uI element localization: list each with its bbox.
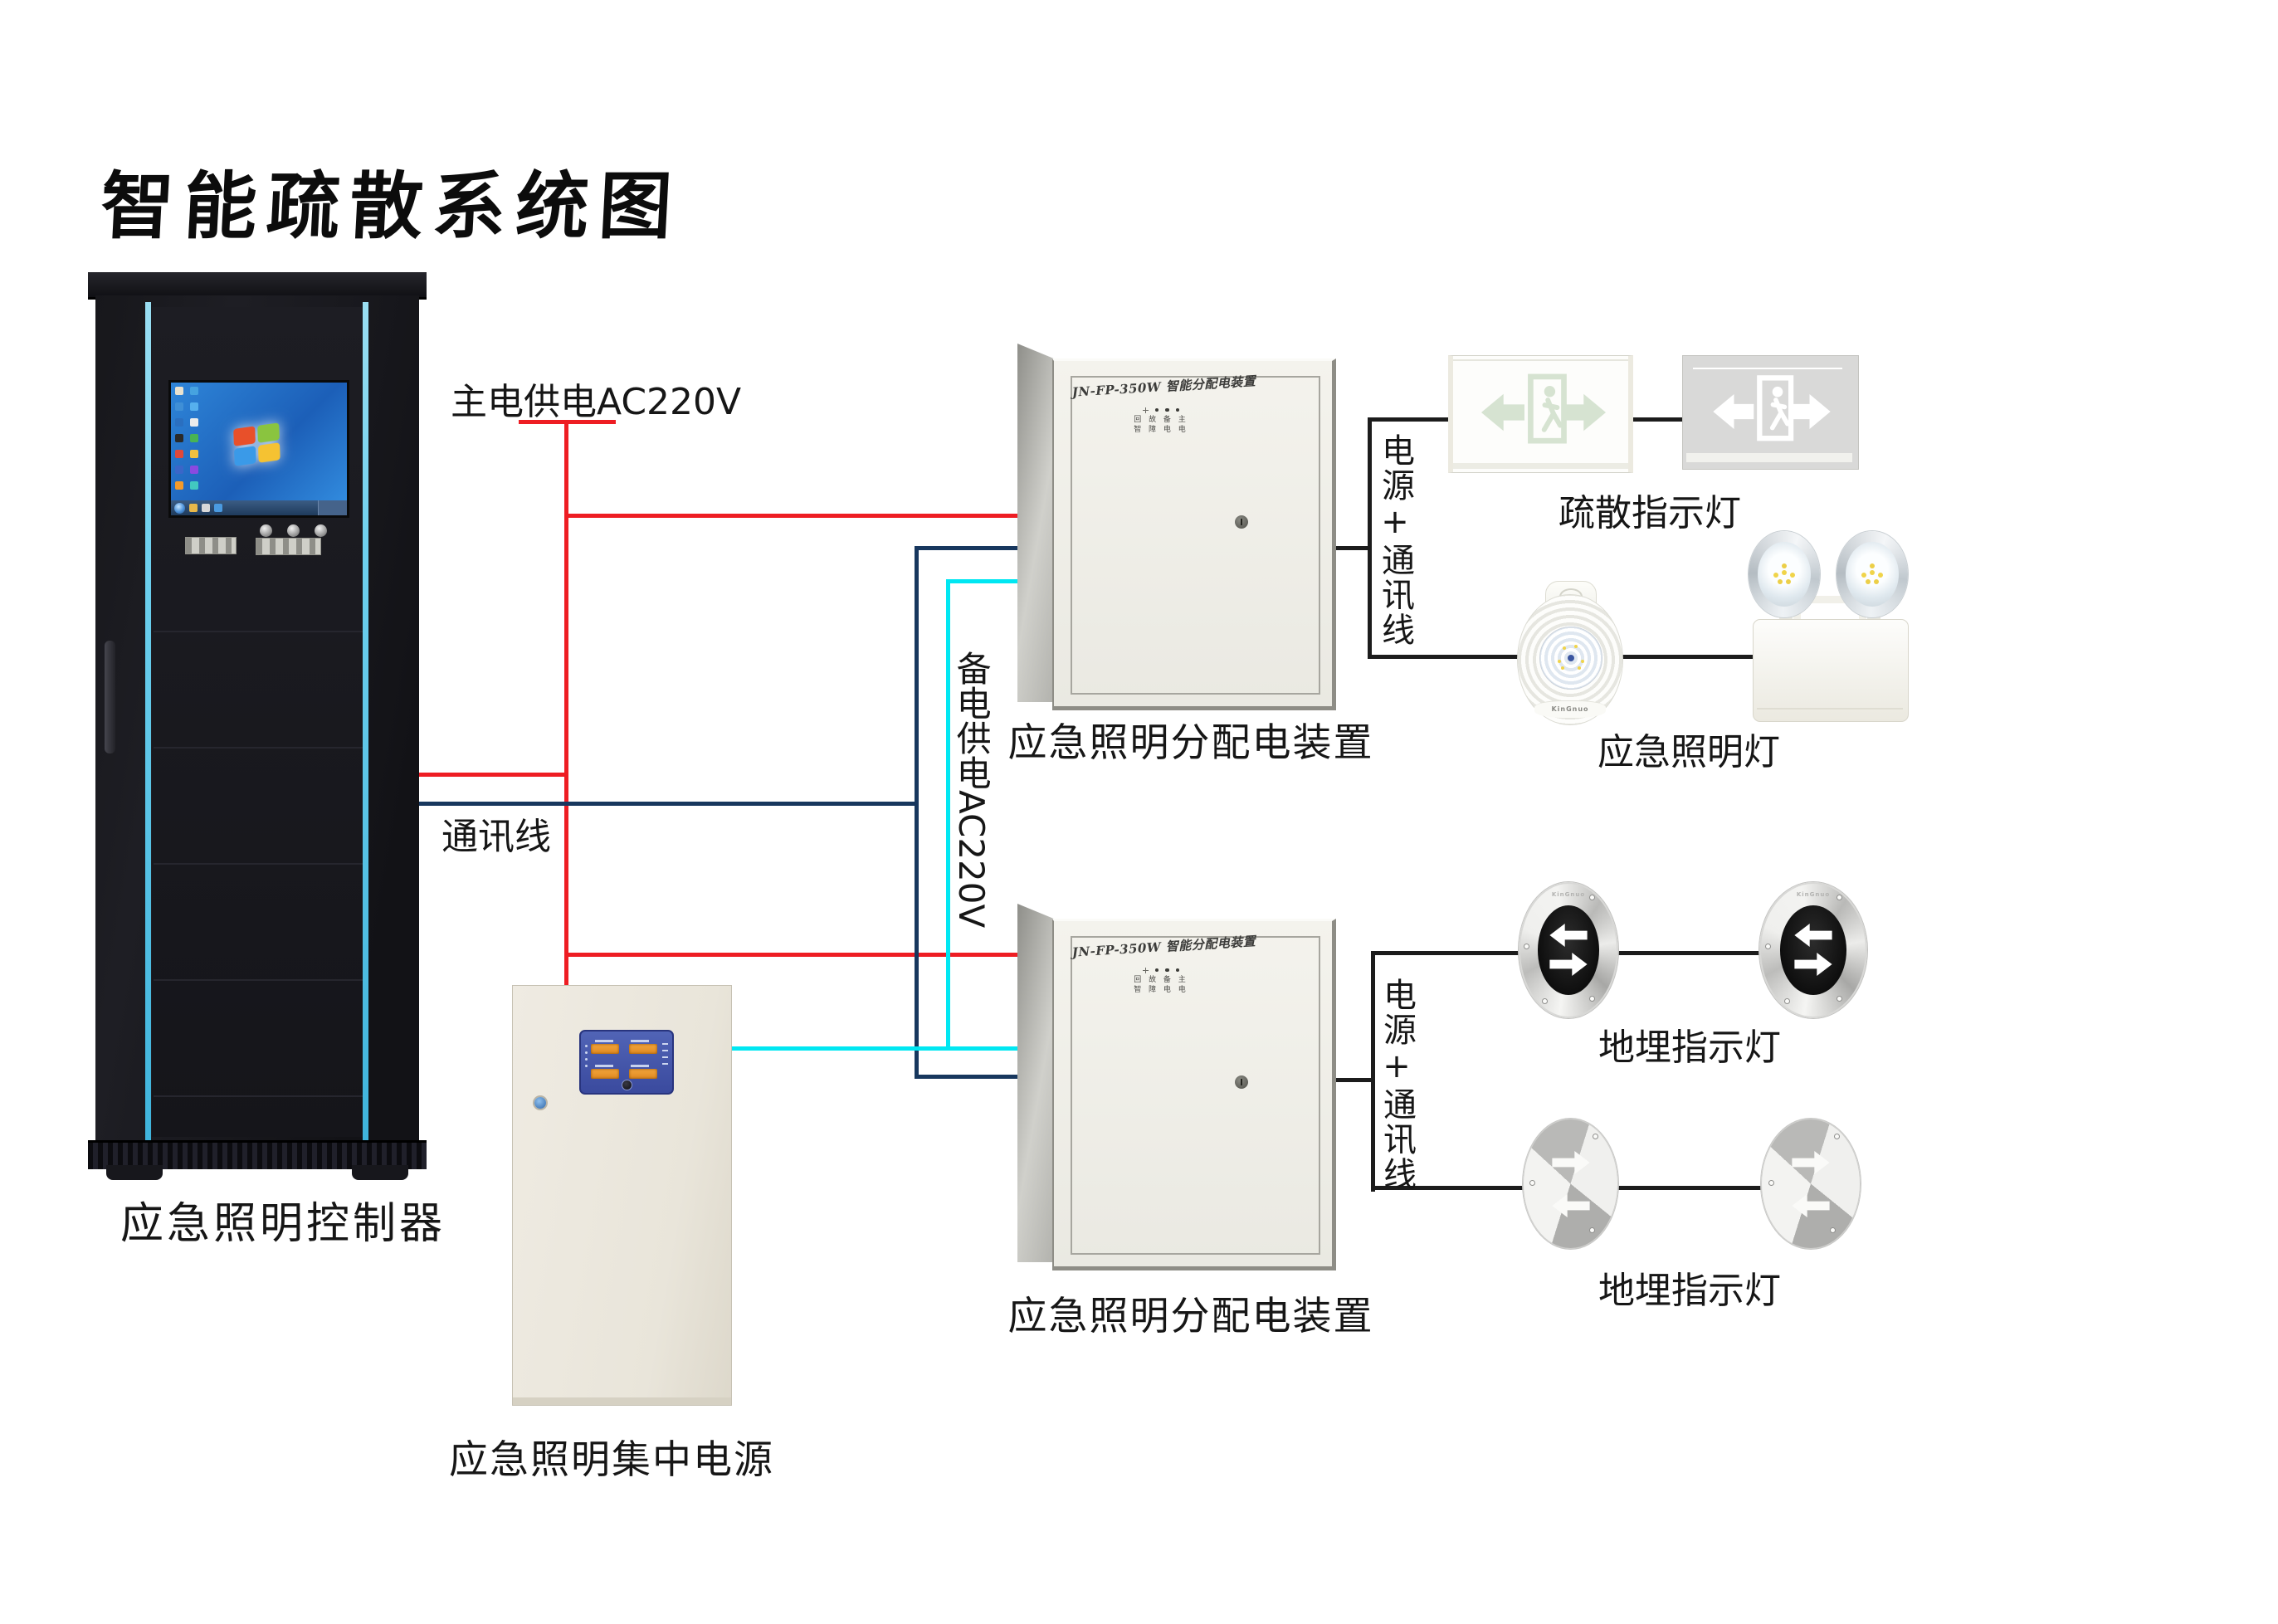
brand-text: KinGnuo [1534, 700, 1606, 718]
buried-row2-link-wire [1615, 1186, 1764, 1190]
power-supply-label: 应急照明集中电源 [449, 1427, 774, 1485]
main-power-wire-to-box2 [564, 953, 1056, 957]
exit-sign-2 [1682, 355, 1859, 470]
distribution-box1-label: 应急照明分配电装置 [1008, 710, 1374, 768]
door-lock-screw [534, 1097, 546, 1109]
led-dot [1176, 408, 1180, 412]
shelf-line [154, 1095, 363, 1097]
main-power-label: 主电供电AC220V [451, 372, 741, 425]
buried-light-label-1: 地埋指示灯 [1598, 1017, 1781, 1070]
brand-text: KinGnuo [1552, 891, 1585, 898]
main-power-wire-to-box1 [564, 514, 1056, 518]
power-comm-label-1: 电源+通讯线 [1378, 433, 1412, 647]
led-cluster [1782, 570, 1787, 575]
twin-lamp-head-right [1837, 531, 1908, 617]
exit-sign-label: 疏散指示灯 [1559, 483, 1741, 536]
central-power-supply-box [512, 985, 732, 1406]
indicator-led [585, 1045, 588, 1047]
led-labels-top: 回 故 备 主 [1128, 976, 1194, 984]
brand-text: KinGnuo [1797, 891, 1830, 898]
box-door-frame [1071, 376, 1320, 695]
cabinet-led-strip-right [363, 302, 368, 1140]
buried-light-1a: KinGnuo [1519, 882, 1618, 1018]
led-dot [1165, 408, 1169, 412]
backup-power-wire-to-box2 [720, 1046, 1056, 1051]
shelf-line [154, 979, 363, 981]
center-pinwheel-icon [1804, 1178, 1817, 1191]
control-knob [315, 524, 327, 537]
controller-label: 应急照明控制器 [120, 1188, 446, 1251]
controller-cabinet [95, 295, 419, 1147]
backup-power-label: 备电供电AC220V [953, 651, 989, 928]
indicator-led [585, 1058, 588, 1061]
taskbar-clock [318, 500, 347, 515]
shelf-line [154, 863, 363, 865]
buried-light-2b [1761, 1119, 1861, 1249]
distribution-box-2: JN-FP-350W 智能分配电装置 回 故 备 主 智 障 电 电 [1052, 919, 1336, 1270]
arrow-left-icon [1788, 1194, 1834, 1217]
buried-light-label-2: 地埋指示灯 [1598, 1261, 1781, 1314]
windows-logo-icon [233, 422, 281, 469]
page-title: 智能疏散系统图 [99, 148, 685, 253]
twin-emergency-lamp-body [1753, 619, 1909, 722]
start-button-icon [174, 503, 185, 514]
panel-knob [622, 1080, 632, 1090]
diagram-canvas: 智能疏散系统图 主电供电AC220V 通讯线 备电供电AC220V 电源+通讯线… [0, 0, 2278, 1624]
box-door-frame [1071, 936, 1320, 1255]
backup-power-wire-vertical [946, 579, 950, 1051]
arrow-left-icon [1548, 1194, 1594, 1217]
led-labels-bottom: 智 障 电 电 [1128, 986, 1194, 994]
twin-lamp-head-left [1749, 531, 1820, 617]
emergency-light-label: 应急照明灯 [1598, 722, 1780, 775]
box-led-cluster: 回 故 备 主 智 障 电 电 [1128, 406, 1194, 434]
main-power-wire-vertical [564, 420, 568, 988]
arrow-left-icon [1547, 924, 1590, 947]
power-supply-control-panel [579, 1030, 674, 1095]
arrow-right-icon [1788, 1151, 1834, 1174]
bracket2-top-wire [1371, 951, 1522, 955]
led-labels-top: 回 故 备 主 [1128, 416, 1194, 424]
seven-segment-display [591, 1069, 619, 1079]
cabinet-foot [352, 1165, 408, 1180]
desktop-icons [175, 387, 200, 490]
cabinet-door-handle [105, 641, 115, 753]
buried-row1-link-wire [1615, 951, 1763, 955]
taskbar [171, 500, 347, 515]
cabinet-screen [168, 380, 349, 518]
buried-light-2a [1523, 1119, 1618, 1249]
shelf-line [154, 747, 363, 749]
main-power-wire-from-cabinet [419, 773, 568, 777]
led-dot [1155, 968, 1159, 973]
led-core [1568, 655, 1574, 661]
control-knob [260, 524, 272, 537]
reset-cross-icon [1143, 407, 1149, 413]
arrow-right-icon [1547, 953, 1590, 976]
exit-sign-link-wire [1632, 417, 1684, 422]
led-dot [1176, 968, 1180, 973]
led-cluster [1870, 570, 1875, 575]
bracket1-bottom-wire [1368, 655, 1522, 659]
distribution-box2-side [1017, 904, 1054, 1262]
distribution-box-1: JN-FP-350W 智能分配电装置 回 故 备 主 智 障 电 电 [1052, 358, 1336, 710]
box-led-cluster: 回 故 备 主 智 障 电 电 [1128, 966, 1194, 994]
box-door-handle [1235, 1075, 1248, 1089]
shelf-line [154, 631, 363, 632]
cabinet-foot [106, 1165, 163, 1180]
indicator-led [585, 1065, 588, 1067]
power-comm-label-2: 电源+通讯线 [1379, 978, 1414, 1192]
box-door-handle [1235, 515, 1248, 529]
arrow-right-icon [1548, 1151, 1594, 1174]
bracket1-vertical [1368, 417, 1372, 659]
arrow-left-icon [1792, 924, 1835, 947]
seven-segment-display [629, 1044, 657, 1054]
center-pinwheel-icon [1564, 1178, 1578, 1191]
box2-output-wire [1334, 1078, 1375, 1082]
led-labels-bottom: 智 障 电 电 [1128, 426, 1194, 434]
bracket1-top-wire [1368, 417, 1451, 422]
control-knob [287, 524, 300, 537]
arrow-right-icon [1792, 953, 1835, 976]
emergency-lamp-link-wire [1618, 655, 1755, 659]
seven-segment-display [591, 1044, 619, 1054]
lamp-diffuser [1539, 627, 1602, 690]
round-emergency-lamp: KinGnuo [1517, 594, 1623, 725]
running-man-exit-icon [1465, 369, 1622, 456]
distribution-box2-label: 应急照明分配电装置 [1008, 1284, 1374, 1341]
taskbar-icon [214, 504, 222, 512]
indicator-led [585, 1051, 588, 1054]
comm-label: 通讯线 [441, 807, 551, 860]
box1-output-wire [1334, 546, 1372, 550]
led-dot [1165, 968, 1169, 973]
comm-wire-vertical [915, 546, 919, 1079]
taskbar-icon [189, 504, 198, 512]
taskbar-icon [202, 504, 210, 512]
cabinet-led-strip-left [145, 302, 151, 1140]
bracket2-vertical [1371, 951, 1375, 1192]
button-panel-left [185, 537, 237, 554]
buried-light-1b: KinGnuo [1759, 882, 1867, 1018]
reset-cross-icon [1143, 968, 1149, 973]
seven-segment-display [629, 1069, 657, 1079]
button-panel-right [256, 538, 321, 555]
buried-light-face [1780, 905, 1847, 995]
buried-light-face [1538, 905, 1599, 995]
comm-wire-from-cabinet [419, 802, 919, 806]
exit-sign-1 [1448, 355, 1633, 473]
led-dot [1155, 408, 1159, 412]
distribution-box1-side [1017, 344, 1054, 702]
running-man-exit-icon [1696, 371, 1847, 452]
